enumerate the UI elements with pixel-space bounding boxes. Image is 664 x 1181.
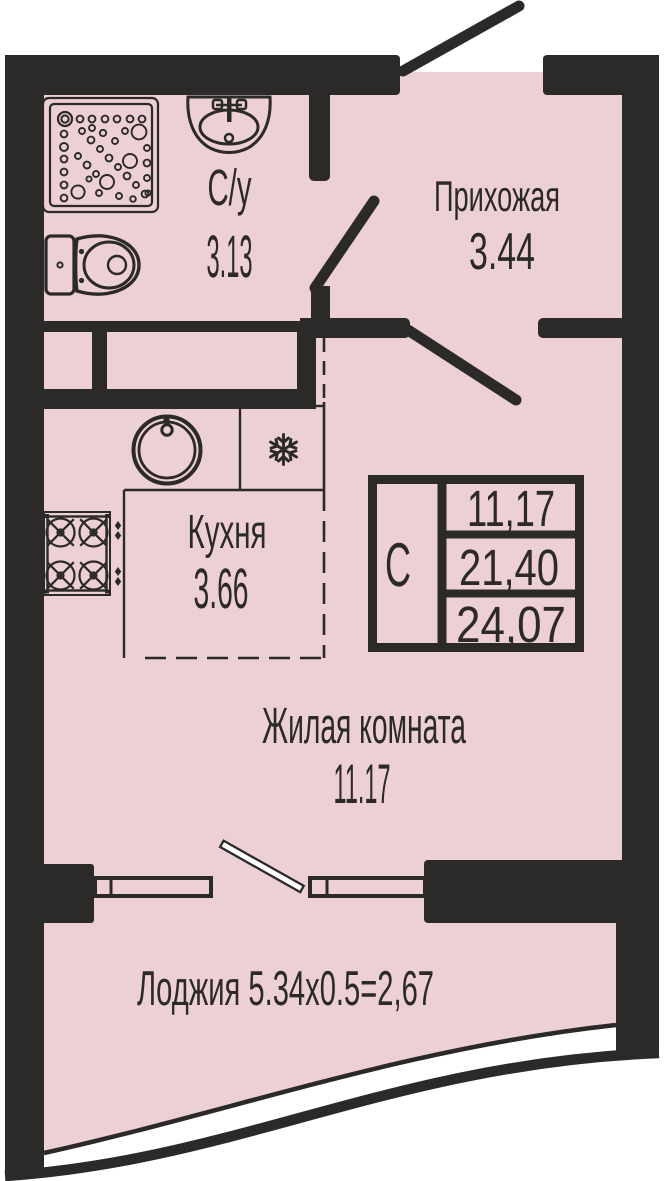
svg-text:21,40: 21,40 <box>459 539 559 596</box>
svg-text:С: С <box>385 531 411 600</box>
svg-text:11.17: 11.17 <box>334 752 391 815</box>
svg-text:Жилая комната: Жилая комната <box>262 697 466 754</box>
svg-text:Кухня: Кухня <box>188 506 267 559</box>
svg-text:С/у: С/у <box>208 159 252 216</box>
svg-text:11,17: 11,17 <box>467 480 555 537</box>
svg-text:Лоджия 5.34х0.5=2,67: Лоджия 5.34х0.5=2,67 <box>137 962 434 1016</box>
svg-text:24,07: 24,07 <box>456 596 566 653</box>
svg-text:Прихожая: Прихожая <box>434 173 560 221</box>
svg-text:3.13: 3.13 <box>207 223 253 290</box>
svg-text:3.66: 3.66 <box>194 557 249 621</box>
svg-text:3.44: 3.44 <box>469 223 535 281</box>
